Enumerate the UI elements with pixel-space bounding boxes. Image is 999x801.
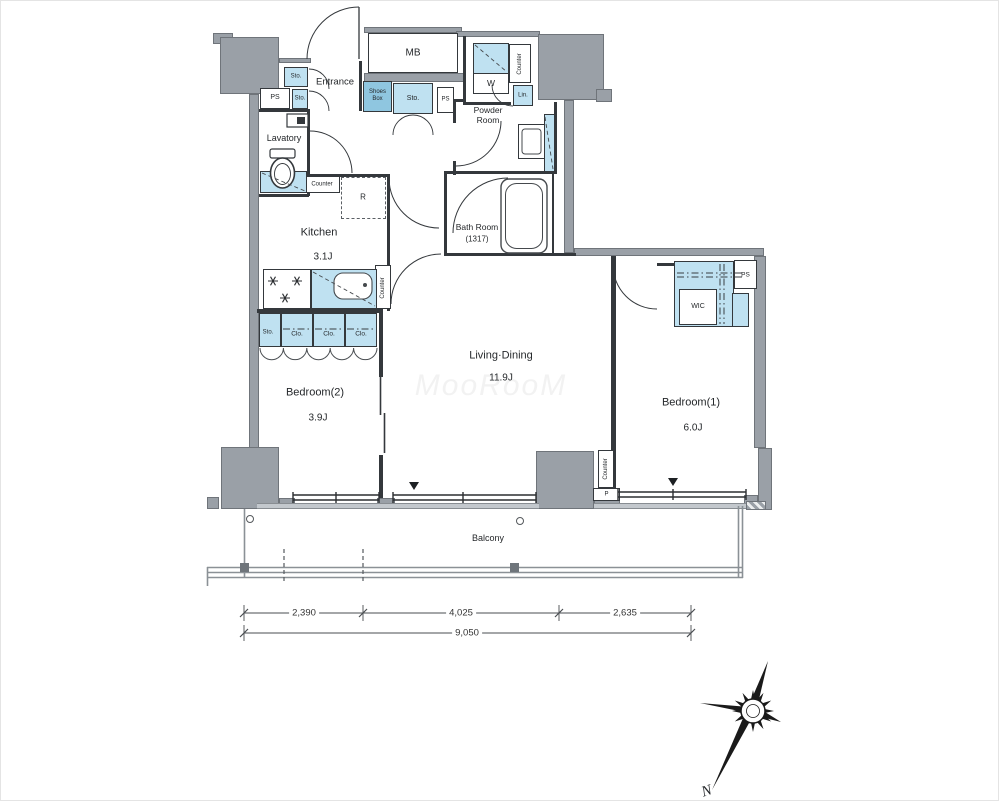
ps-label-mid: PS xyxy=(441,97,449,104)
vanity-basin-strip xyxy=(544,114,555,172)
window-sill-right xyxy=(594,503,764,509)
kitchen-size-label: 3.1J xyxy=(314,251,333,263)
closet-clo-label-3: Clo. xyxy=(355,330,367,337)
bedroom1-size-label: 6.0J xyxy=(684,422,703,434)
wall-left xyxy=(249,94,259,449)
dim-total: 9,050 xyxy=(452,628,482,639)
living-door-arc xyxy=(391,254,441,304)
wall-bath-left xyxy=(444,171,447,256)
entrance-label: Entrance xyxy=(316,78,354,89)
lavatory-counter xyxy=(260,171,307,193)
entrance-door-arc xyxy=(307,7,359,59)
ld-counter-label: Counter xyxy=(603,458,609,479)
wall-mid-horizontal xyxy=(574,248,764,256)
compass-icon xyxy=(700,661,781,790)
shoes-box-label: Shoes Box xyxy=(365,89,391,103)
kitchen-door-arc xyxy=(389,178,439,228)
p-label: P xyxy=(604,491,608,498)
lavatory-wall-box xyxy=(287,114,308,127)
sliding-door-gap xyxy=(378,377,384,455)
kitchen-label: Kitchen xyxy=(301,227,338,240)
wall-entrance-right xyxy=(359,61,362,111)
window-marker-ld xyxy=(409,482,419,490)
wall-top-left-block xyxy=(220,37,279,94)
bedroom1-label: Bedroom(1) xyxy=(662,397,720,410)
kitchen-sink-counter xyxy=(311,269,377,309)
ps-label-left: PS xyxy=(270,94,279,102)
window-marker-bed1 xyxy=(668,478,678,486)
watermark: MooRooM xyxy=(415,369,567,403)
bath-room-label: Bath Room xyxy=(456,223,499,233)
ps-label-wic: PS xyxy=(741,271,750,278)
linen-label: Lin. xyxy=(518,92,528,99)
wall-bath-right xyxy=(552,174,554,253)
lavatory-label: Lavatory xyxy=(267,133,302,143)
bathtub-icon xyxy=(501,179,547,253)
wall-center-pillar xyxy=(536,451,594,509)
powder-counter-label: Counter xyxy=(517,53,523,74)
wic-area-ext xyxy=(732,293,749,327)
closet-clo-label-2: Clo. xyxy=(323,330,335,337)
wall-lavatory-top xyxy=(259,109,310,112)
balcony-right-partition xyxy=(746,501,766,510)
stove xyxy=(263,269,311,309)
wic-label: WIC xyxy=(691,303,705,311)
compass-north-label: N xyxy=(700,782,715,801)
sto-label-hall: Sto. xyxy=(407,95,419,103)
window-sill-left xyxy=(257,503,539,509)
lavatory-door-arc xyxy=(310,131,352,173)
wall-top-mid xyxy=(456,31,540,37)
powder-room-label: Powder Room xyxy=(464,106,512,126)
dim-seg1: 2,390 xyxy=(289,608,319,619)
windows xyxy=(293,489,746,503)
bedroom1-door-arc xyxy=(613,265,657,309)
sto-label-1: Sto. xyxy=(291,74,302,81)
closet-sto-label: Sto. xyxy=(263,330,274,337)
wall-entrance-top xyxy=(279,58,311,63)
lav-counter-label: Counter xyxy=(311,181,332,188)
refrigerator-label: R xyxy=(360,192,366,201)
kitchen-counter-label: Counter xyxy=(380,277,386,298)
vanity-counter xyxy=(518,124,545,159)
dim-seg2: 4,025 xyxy=(446,608,476,619)
living-dining-label: Living·Dining xyxy=(469,350,533,363)
wall-top-right-step xyxy=(596,89,612,102)
wall-lavatory-bottom xyxy=(259,194,309,197)
sto-label-2: Sto. xyxy=(295,96,306,103)
balcony-label: Balcony xyxy=(472,533,504,543)
powder-door-arc xyxy=(456,121,501,166)
wall-bath-top xyxy=(444,171,556,174)
washer-label: W xyxy=(487,79,495,89)
mb-label: MB xyxy=(406,47,421,59)
bedroom2-label: Bedroom(2) xyxy=(286,387,344,400)
balcony-left-stub xyxy=(207,497,219,509)
closet-clo-label-1: Clo. xyxy=(291,330,303,337)
wall-powder-upper-left xyxy=(463,36,466,102)
washer-pan xyxy=(473,43,509,74)
balcony-railing xyxy=(207,506,743,586)
bedroom2-size-label: 3.9J xyxy=(309,412,328,424)
closet-curtains xyxy=(260,348,377,360)
wall-right-upper xyxy=(564,100,574,253)
wall-top-right-block xyxy=(538,34,604,100)
floor-plan: MB Entrance Sto. Sto. PS Shoes Box Sto. … xyxy=(0,0,999,801)
bath-size-label: (1317) xyxy=(465,234,488,243)
wall-bottom-left-pillar xyxy=(221,447,279,509)
dim-seg3: 2,635 xyxy=(610,608,640,619)
wall-bath-bottom xyxy=(444,253,576,256)
